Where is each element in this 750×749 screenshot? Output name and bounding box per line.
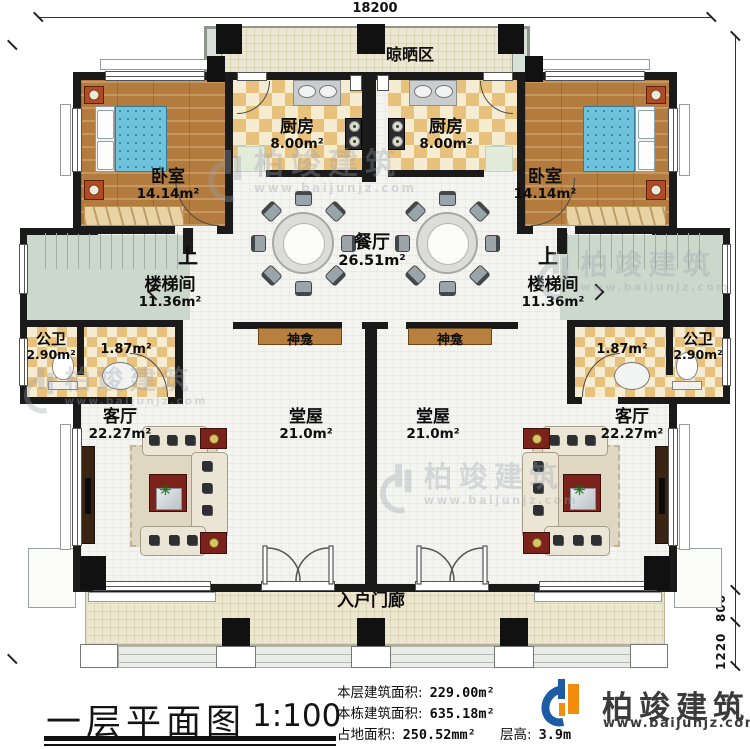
- window-sill: [534, 592, 662, 602]
- room-label-dining: 餐厅 26.51m²: [338, 233, 405, 269]
- side-cabinet: [523, 532, 550, 554]
- room-label-hall-right: 堂屋 21.0m²: [406, 408, 459, 442]
- nightstand: [84, 86, 104, 104]
- toilet: [48, 381, 78, 390]
- window: [105, 71, 205, 81]
- wall-stub: [557, 228, 567, 254]
- wall: [225, 72, 233, 233]
- pilaster: [644, 556, 670, 590]
- wall: [20, 397, 132, 404]
- balcony-door-opening: [483, 72, 513, 81]
- plant-icon: ✳: [573, 481, 586, 499]
- wall: [567, 320, 730, 327]
- chair: [251, 235, 266, 252]
- bed-right: [583, 106, 635, 172]
- stat-floor-area: 本层建筑面积:229.00m²: [337, 681, 495, 701]
- chair: [439, 191, 456, 206]
- wall: [567, 320, 575, 404]
- kitchen-center-door: [350, 75, 362, 91]
- dim-line-right: [735, 36, 736, 668]
- dim-tick: [7, 654, 17, 664]
- room-label-bath-right-anteroom: 1.87m²: [596, 343, 647, 358]
- bed-pillow: [638, 110, 655, 139]
- french-door-left: [261, 518, 335, 584]
- room-label-bedroom-right: 卧室 14.14m²: [514, 168, 577, 202]
- bedroom-bench: [84, 206, 184, 226]
- room-label-bedroom-left: 卧室 14.14m²: [137, 168, 200, 202]
- shrine-shelf-left: 神龛: [258, 328, 342, 345]
- bath-sink: [614, 362, 650, 390]
- room-label-stair-right: 楼梯间 11.36m²: [522, 276, 585, 310]
- window: [93, 581, 211, 591]
- room-label-hall-left: 堂屋 21.0m²: [279, 408, 332, 442]
- stove-burner: [349, 136, 360, 147]
- stair-treads-left: [45, 233, 183, 269]
- room-label-living-left: 客厅 22.27m²: [89, 408, 152, 442]
- dim-line-top: [38, 17, 712, 18]
- column-footing: [216, 646, 256, 668]
- dim-steps-depth: 1220: [714, 622, 728, 670]
- dim-tick: [7, 40, 17, 50]
- column: [216, 24, 242, 54]
- room-label-shrine-left: 神龛: [287, 333, 313, 348]
- window: [668, 428, 678, 546]
- sink-basin: [435, 85, 453, 98]
- wall: [575, 226, 677, 234]
- stair-treads-right: [567, 233, 705, 269]
- window-sill: [100, 59, 210, 70]
- company-logo-url: www.baijunjz.com: [603, 716, 750, 731]
- plant-icon: ✳: [159, 481, 172, 499]
- chair: [295, 191, 312, 206]
- room-label-kitchen-left: 厨房 8.00m²: [270, 118, 323, 152]
- room-label-living-right: 客厅 22.27m²: [601, 408, 664, 442]
- window-sill: [679, 104, 690, 176]
- toilet: [672, 381, 702, 390]
- window: [539, 581, 657, 591]
- wall: [73, 226, 175, 234]
- dim-top-width: 18200: [0, 1, 750, 16]
- room-label-stair-left: 楼梯间 11.36m²: [139, 276, 202, 310]
- window: [72, 108, 82, 172]
- chair: [485, 235, 500, 252]
- side-cabinet: [200, 532, 227, 554]
- room-label-bath-left: 公卫 2.90m²: [26, 331, 75, 362]
- bed-pillow: [97, 110, 114, 139]
- wall: [666, 327, 673, 375]
- wall: [175, 320, 183, 404]
- dining-table: [427, 223, 469, 265]
- porch-column: [222, 618, 250, 646]
- tv: [659, 478, 665, 514]
- stove-burner: [392, 136, 403, 147]
- bed-pillow: [638, 141, 655, 170]
- sink-basin: [414, 85, 432, 98]
- window: [722, 244, 731, 294]
- porch-column: [357, 618, 385, 646]
- window-sill: [679, 424, 690, 550]
- pilaster: [80, 556, 106, 590]
- sink-basin: [298, 85, 316, 98]
- window: [19, 244, 28, 294]
- column-footing: [494, 646, 534, 668]
- window: [722, 338, 731, 386]
- column: [357, 24, 385, 54]
- window-sill: [88, 592, 216, 602]
- nightstand: [84, 180, 104, 200]
- french-door-right: [415, 518, 489, 584]
- column: [498, 24, 524, 54]
- bedroom-bench: [566, 206, 666, 226]
- window: [545, 71, 645, 81]
- floor-plan-canvas: 18200 13820 800 1220 晾晒区 入户门廊: [0, 0, 750, 749]
- plan-scale: 1:100: [252, 698, 341, 734]
- column-footing: [351, 646, 391, 668]
- pilaster: [525, 56, 543, 82]
- window-sill: [60, 104, 71, 176]
- tv: [85, 478, 91, 514]
- stove-burner: [392, 121, 403, 132]
- sofa: [544, 526, 610, 556]
- window-sill: [540, 59, 650, 70]
- wall: [20, 320, 183, 327]
- wall: [517, 72, 525, 233]
- side-terrace-left: [28, 548, 76, 608]
- stair-up-label-right: 上: [538, 240, 558, 269]
- chair: [439, 281, 456, 296]
- nightstand: [646, 180, 666, 200]
- column-footing: [80, 644, 118, 668]
- room-label-porch: 入户门廊: [337, 592, 405, 611]
- window: [72, 428, 82, 546]
- stat-land-area: 占地面积:250.52mm²: [337, 723, 476, 743]
- title-underline: [44, 744, 336, 746]
- wall: [77, 327, 84, 375]
- kitchen-center-door: [377, 75, 389, 91]
- company-logo-icon: [541, 676, 595, 734]
- room-label-shrine-right: 神龛: [437, 333, 463, 348]
- stove-burner: [349, 121, 360, 132]
- sink-basin: [319, 85, 337, 98]
- bed-pillow: [97, 141, 114, 170]
- side-terrace-right: [674, 548, 722, 608]
- chair: [295, 281, 312, 296]
- porch-column: [500, 618, 528, 646]
- room-label-bath-left-anteroom: 1.87m²: [100, 343, 151, 358]
- kitchen-mat: [237, 146, 265, 172]
- title-underline: [44, 736, 336, 741]
- nightstand: [646, 86, 666, 104]
- wall-kitchen-divider: [362, 72, 376, 182]
- window: [668, 108, 678, 172]
- window-sill: [60, 424, 71, 550]
- balcony-door-opening: [237, 72, 267, 81]
- stat-building-area: 本栋建筑面积:635.18m²: [337, 702, 495, 722]
- sofa: [140, 526, 206, 556]
- room-label-kitchen-right: 厨房 8.00m²: [419, 118, 472, 152]
- wall: [517, 226, 533, 234]
- kitchen-mat: [485, 146, 513, 172]
- dining-table: [283, 223, 325, 265]
- stair-up-label-left: 上: [178, 240, 198, 269]
- wall-center: [365, 322, 377, 590]
- bed-left: [115, 106, 167, 172]
- column-footing: [630, 644, 668, 668]
- wall: [618, 397, 730, 404]
- wall: [266, 170, 362, 177]
- wall: [217, 226, 233, 234]
- pilaster: [207, 56, 225, 82]
- room-label-bath-right: 公卫 2.90m²: [673, 331, 722, 362]
- side-cabinet: [200, 428, 227, 449]
- bath-sink: [102, 362, 138, 390]
- side-cabinet: [523, 428, 550, 449]
- room-label-drying-area: 晾晒区: [386, 46, 434, 64]
- shrine-shelf-right: 神龛: [408, 328, 492, 345]
- wall: [388, 170, 484, 177]
